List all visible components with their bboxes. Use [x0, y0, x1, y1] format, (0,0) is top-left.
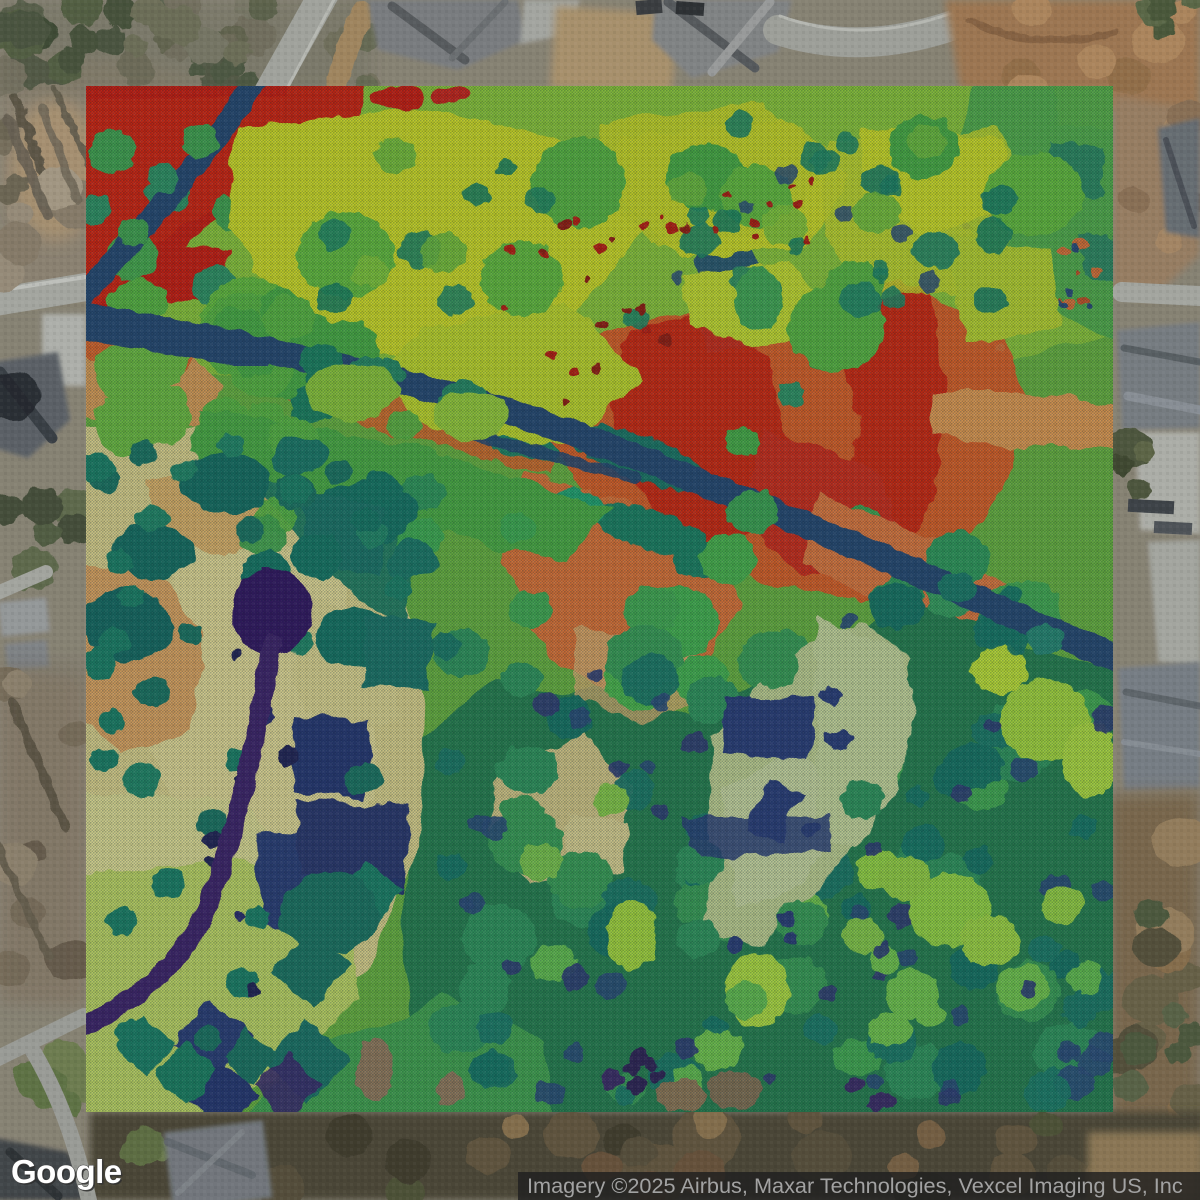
svg-text:Imagery ©2025 Airbus, Maxar Te: Imagery ©2025 Airbus, Maxar Technologies… [527, 1173, 1183, 1198]
svg-text:Google: Google [11, 1153, 122, 1190]
